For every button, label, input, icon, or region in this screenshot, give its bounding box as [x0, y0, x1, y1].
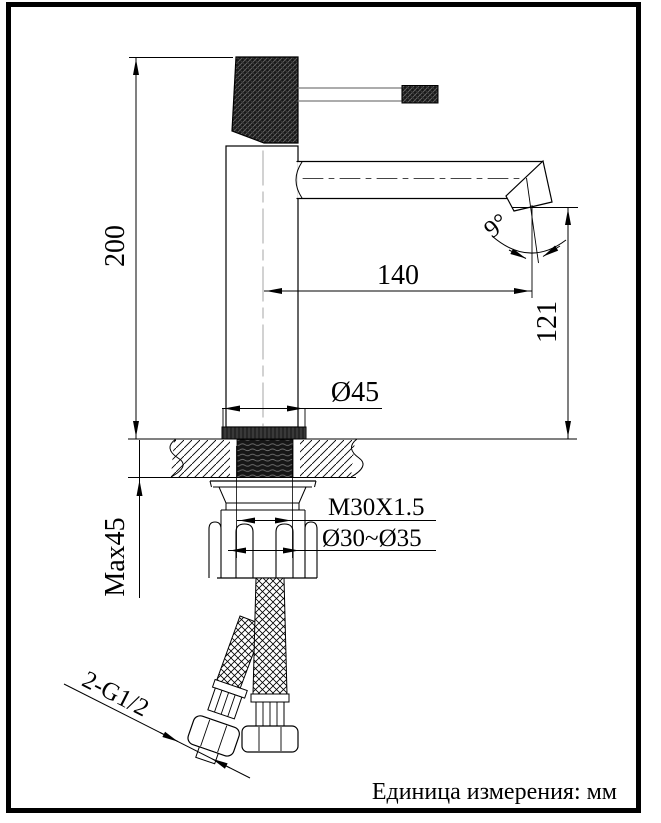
- label-height-200: 200: [100, 225, 131, 267]
- counter-hatch-right: [300, 440, 355, 477]
- label-max45: Max45: [100, 517, 131, 596]
- label-reach-140: 140: [377, 260, 419, 291]
- spout: [296, 161, 552, 211]
- lever-handle: [298, 86, 438, 104]
- supply-hoses: [183, 578, 298, 768]
- countertop: [128, 439, 577, 478]
- faucet-technical-drawing: 200 140 121 9° Ø45 Max45 M30X1.5 Ø30~Ø35…: [0, 0, 661, 823]
- label-outlet-121: 121: [532, 301, 563, 343]
- label-base-d45: Ø45: [331, 377, 379, 408]
- hose-braid-vertical: [253, 578, 287, 694]
- threaded-shank: [237, 440, 293, 478]
- drawing-sheet: 200 140 121 9° Ø45 Max45 M30X1.5 Ø30~Ø35…: [0, 0, 661, 823]
- lever-grip: [402, 86, 438, 104]
- hose-nut-angled: [183, 714, 242, 768]
- label-hose-g12: 2-G1/2: [78, 666, 153, 722]
- nut-ear-left: [209, 522, 221, 578]
- unit-note: Единица измерения: мм: [372, 779, 617, 805]
- dimension-height-200: [129, 58, 233, 440]
- hose-fitting-vertical: [256, 702, 284, 726]
- faucet-body: [226, 146, 298, 427]
- hose-collar-vertical: [251, 694, 289, 702]
- handle-cap: [232, 57, 298, 143]
- faucet: [222, 57, 552, 439]
- label-angle-9deg: 9°: [479, 209, 513, 244]
- mounting-nut-assembly: [209, 481, 317, 578]
- hose-nut-vertical: [242, 726, 298, 752]
- label-thread-m30: M30X1.5: [328, 494, 425, 521]
- base-flange: [222, 427, 306, 439]
- label-hole-d30-35: Ø30~Ø35: [322, 525, 422, 552]
